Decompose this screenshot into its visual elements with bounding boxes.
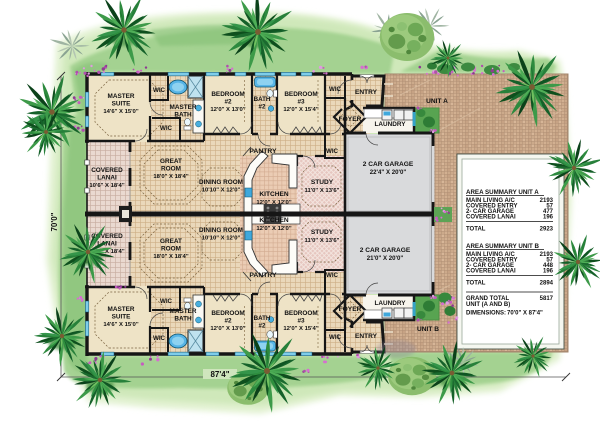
svg-text:70'0" X 87'4": 70'0" X 87'4"	[507, 311, 543, 317]
svg-text:14'6" X 15'0": 14'6" X 15'0"	[103, 322, 138, 328]
svg-text:ENTRY: ENTRY	[355, 89, 378, 96]
svg-text:12'0" X 12'0": 12'0" X 12'0"	[256, 226, 291, 232]
svg-text:STUDY: STUDY	[311, 179, 334, 186]
svg-text:BEDROOM: BEDROOM	[284, 310, 317, 317]
svg-text:10'6" X 18'4": 10'6" X 18'4"	[89, 183, 124, 189]
svg-text:LAUNDRY: LAUNDRY	[374, 300, 406, 307]
svg-text:12'0" X 12'0": 12'0" X 12'0"	[256, 200, 291, 206]
svg-text:11'0" X 13'6": 11'0" X 13'6"	[305, 238, 340, 244]
svg-text:COVERED: COVERED	[91, 167, 123, 174]
svg-text:2894: 2894	[540, 281, 554, 287]
svg-text:SUITE: SUITE	[112, 314, 132, 321]
svg-text:COVERED LANAI: COVERED LANAI	[466, 269, 516, 275]
svg-text:18'0" X 18'4": 18'0" X 18'4"	[153, 254, 188, 260]
svg-text:21'0" X 20'0": 21'0" X 20'0"	[367, 255, 404, 262]
svg-text:PANTRY: PANTRY	[249, 272, 277, 279]
svg-text:5817: 5817	[540, 296, 554, 302]
svg-text:11'0" X 13'6": 11'0" X 13'6"	[305, 188, 340, 194]
svg-text:WIC: WIC	[153, 335, 166, 342]
svg-text:2923: 2923	[540, 227, 554, 233]
svg-text:UNIT (A AND B): UNIT (A AND B)	[466, 302, 510, 308]
svg-text:MASTER: MASTER	[108, 93, 135, 100]
svg-text:UNIT B: UNIT B	[417, 326, 439, 333]
svg-text:WIC: WIC	[153, 87, 166, 94]
svg-text:KITCHEN: KITCHEN	[259, 217, 289, 224]
svg-text:87'4": 87'4"	[210, 370, 229, 379]
svg-text:ROOM: ROOM	[161, 166, 181, 173]
svg-text:#2: #2	[259, 322, 266, 329]
svg-text:COVERED LANAI: COVERED LANAI	[466, 215, 516, 221]
svg-text:UNIT A: UNIT A	[426, 98, 448, 105]
svg-text:LAUNDRY: LAUNDRY	[374, 121, 406, 128]
svg-text:196: 196	[543, 215, 554, 221]
svg-text:WIC: WIC	[329, 86, 342, 93]
svg-text:BEDROOM: BEDROOM	[284, 91, 317, 98]
svg-text:BATH: BATH	[254, 96, 271, 103]
svg-text:#2: #2	[259, 103, 266, 110]
svg-text:BATH: BATH	[174, 316, 192, 323]
svg-text:TOTAL: TOTAL	[466, 281, 486, 287]
svg-text:WIC: WIC	[326, 272, 339, 279]
svg-text:BATH: BATH	[254, 315, 271, 322]
svg-text:SUITE: SUITE	[112, 101, 132, 108]
svg-text:FOYER: FOYER	[339, 116, 362, 123]
svg-text:LANAI: LANAI	[97, 175, 117, 182]
svg-text:WIC: WIC	[160, 298, 173, 305]
svg-text:12'0" X 15'4": 12'0" X 15'4"	[283, 107, 318, 113]
svg-text:WIC: WIC	[329, 334, 342, 341]
svg-text:196: 196	[543, 269, 554, 275]
svg-text:#2: #2	[224, 99, 232, 106]
svg-text:14'6" X 15'0": 14'6" X 15'0"	[103, 109, 138, 115]
svg-text:#3: #3	[297, 99, 305, 106]
svg-text:DINING ROOM: DINING ROOM	[199, 227, 243, 234]
svg-text:12'0" X 15'4": 12'0" X 15'4"	[283, 326, 318, 332]
svg-text:22'4" X 20'0": 22'4" X 20'0"	[370, 169, 407, 176]
svg-text:KITCHEN: KITCHEN	[259, 191, 289, 198]
svg-text:70'0": 70'0"	[50, 212, 59, 231]
svg-text:10'10" X 12'0": 10'10" X 12'0"	[202, 236, 241, 242]
svg-text:AREA SUMMARY UNIT A: AREA SUMMARY UNIT A	[466, 189, 539, 196]
svg-text:12'0" X 13'0": 12'0" X 13'0"	[210, 107, 245, 113]
svg-text:WIC: WIC	[160, 125, 173, 132]
svg-text:STUDY: STUDY	[311, 229, 334, 236]
svg-text:10'10" X 12'0": 10'10" X 12'0"	[202, 188, 241, 194]
svg-text:ENTRY: ENTRY	[355, 333, 378, 340]
svg-text:ROOM: ROOM	[161, 246, 181, 253]
svg-text:AREA SUMMARY UNIT B: AREA SUMMARY UNIT B	[466, 243, 540, 250]
svg-text:BEDROOM: BEDROOM	[211, 91, 244, 98]
svg-text:2 CAR GARAGE: 2 CAR GARAGE	[360, 247, 411, 254]
svg-text:GREAT: GREAT	[160, 238, 182, 245]
svg-text:FOYER: FOYER	[339, 306, 362, 313]
svg-text:DINING ROOM: DINING ROOM	[199, 179, 243, 186]
svg-text:TOTAL: TOTAL	[466, 227, 486, 233]
svg-text:MASTER: MASTER	[170, 104, 197, 111]
svg-text:DIMENSIONS:: DIMENSIONS:	[466, 311, 506, 317]
svg-text:GREAT: GREAT	[160, 158, 182, 165]
svg-text:BATH: BATH	[174, 112, 192, 119]
svg-text:#3: #3	[297, 318, 305, 325]
svg-text:MASTER: MASTER	[170, 308, 197, 315]
svg-text:#2: #2	[224, 318, 232, 325]
svg-text:MASTER: MASTER	[108, 306, 135, 313]
svg-text:WIC: WIC	[326, 148, 339, 155]
svg-text:2 CAR GARAGE: 2 CAR GARAGE	[363, 161, 414, 168]
svg-text:12'0" X 13'0": 12'0" X 13'0"	[210, 326, 245, 332]
svg-text:BEDROOM: BEDROOM	[211, 310, 244, 317]
svg-text:18'0" X 18'4": 18'0" X 18'4"	[153, 174, 188, 180]
svg-text:PANTRY: PANTRY	[249, 148, 277, 155]
